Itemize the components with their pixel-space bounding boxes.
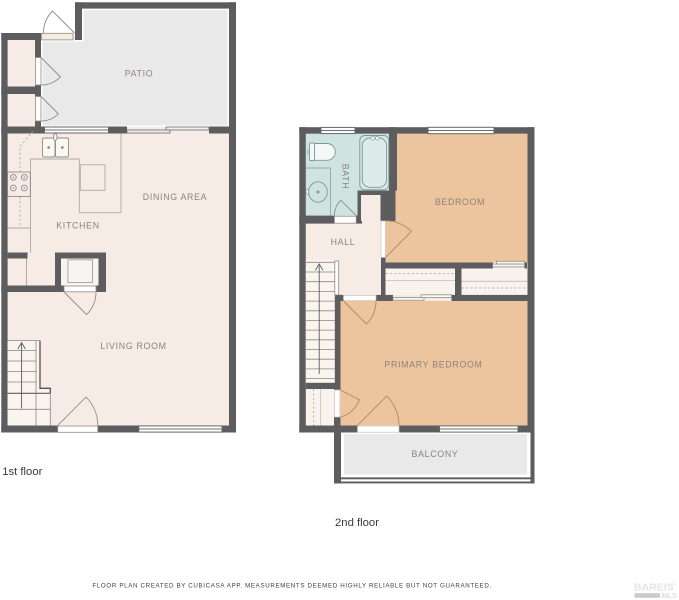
- svg-text:BALCONY: BALCONY: [412, 449, 459, 459]
- svg-text:PATIO: PATIO: [125, 69, 154, 79]
- svg-text:FLOOR PLAN CREATED BY CUBICASA: FLOOR PLAN CREATED BY CUBICASA APP. MEAS…: [92, 582, 491, 589]
- svg-text:1st floor: 1st floor: [2, 466, 42, 478]
- svg-text:BEDROOM: BEDROOM: [435, 197, 485, 207]
- svg-text:BATH: BATH: [340, 164, 350, 190]
- svg-text:HALL: HALL: [331, 237, 356, 247]
- svg-text:KITCHEN: KITCHEN: [56, 220, 100, 230]
- svg-text:DINING AREA: DINING AREA: [143, 192, 207, 202]
- svg-text:LIVING ROOM: LIVING ROOM: [100, 341, 166, 351]
- svg-text:PRIMARY BEDROOM: PRIMARY BEDROOM: [384, 360, 482, 370]
- svg-text:2nd floor: 2nd floor: [335, 517, 379, 529]
- svg-text:MLS: MLS: [661, 591, 677, 600]
- svg-text:®: ®: [673, 580, 677, 587]
